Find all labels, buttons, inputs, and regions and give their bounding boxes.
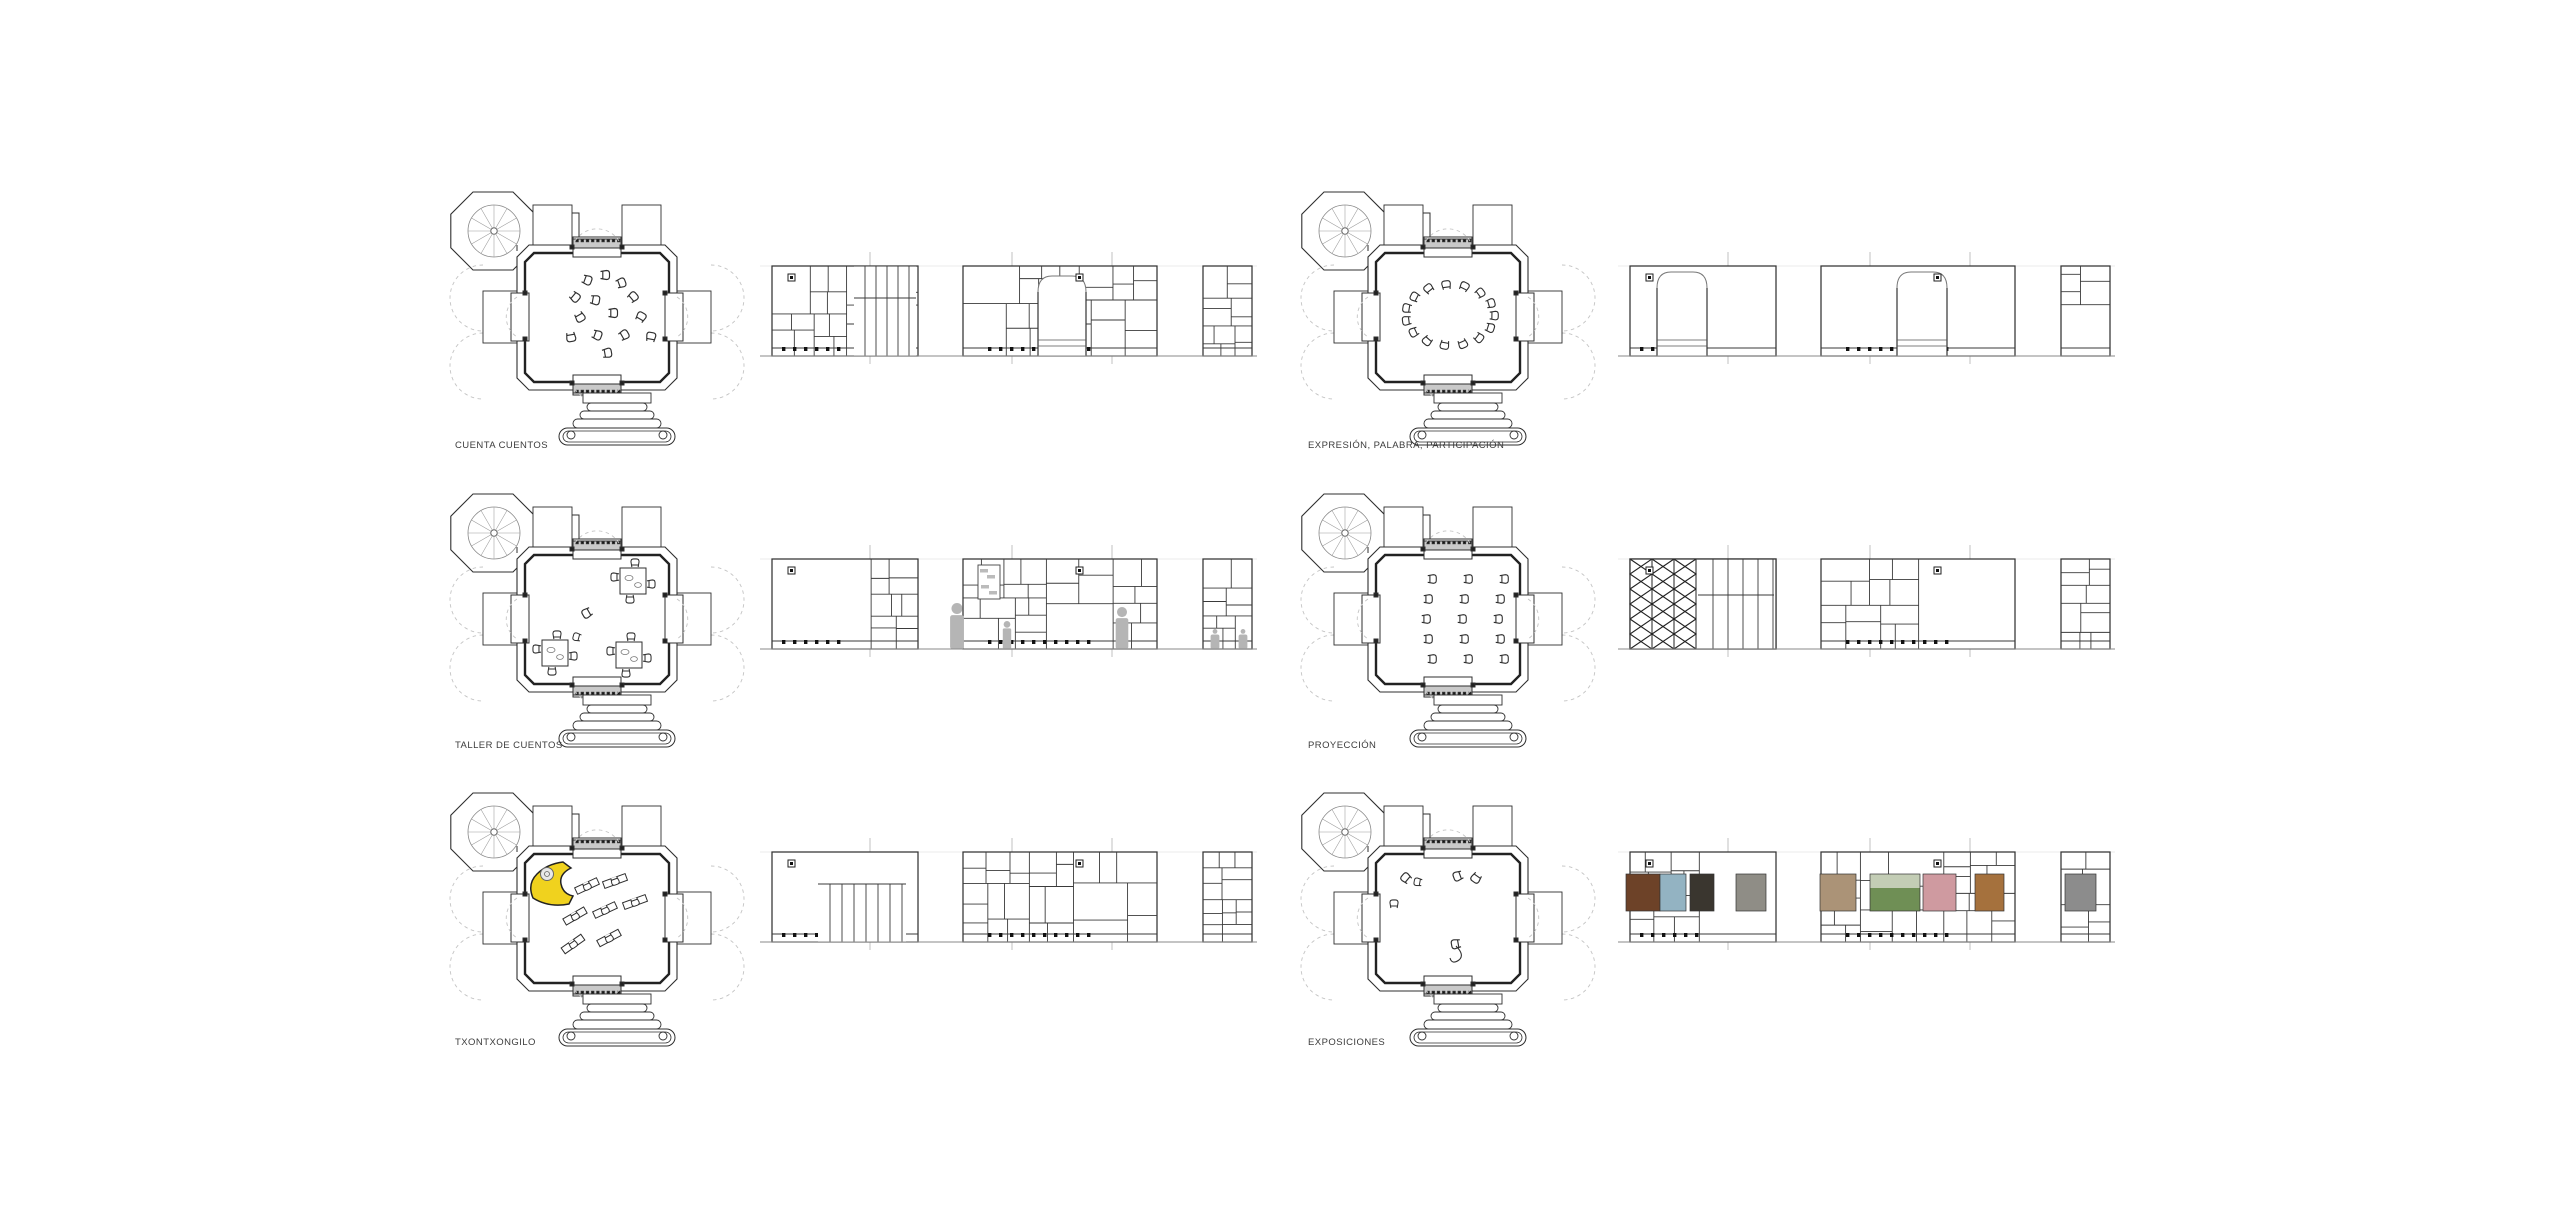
plan-label-proyeccion: PROYECCIÓN xyxy=(1308,740,1376,751)
floor-plan-taller-de-cuentos xyxy=(437,487,747,749)
elevation-cuenta-cuentos xyxy=(760,252,1260,364)
plan-label-expresion: EXPRESIÓN, PALABRA, PARTICIPACIÓN xyxy=(1308,440,1504,451)
plan-label-taller-de-cuentos: TALLER DE CUENTOS xyxy=(455,740,563,751)
elevation-txontxongilo xyxy=(760,838,1260,950)
elevation-exposiciones xyxy=(1618,838,2118,950)
plan-label-txontxongilo: TXONTXONGILO xyxy=(455,1037,536,1048)
floor-plan-exposiciones xyxy=(1288,786,1598,1048)
floor-plan-cuenta-cuentos xyxy=(437,185,747,447)
floor-plan-proyeccion xyxy=(1288,487,1598,749)
floor-plan-expresion xyxy=(1288,185,1598,447)
plan-label-cuenta-cuentos: CUENTA CUENTOS xyxy=(455,440,548,451)
elevation-proyeccion xyxy=(1618,545,2118,657)
elevation-expresion xyxy=(1618,252,2118,364)
floor-plan-txontxongilo xyxy=(437,786,747,1048)
plan-label-exposiciones: EXPOSICIONES xyxy=(1308,1037,1385,1048)
drawing-sheet: CUENTA CUENTOS EXPRESIÓN, PALABRA, PARTI… xyxy=(0,0,2560,1231)
elevation-taller-de-cuentos xyxy=(760,545,1260,657)
